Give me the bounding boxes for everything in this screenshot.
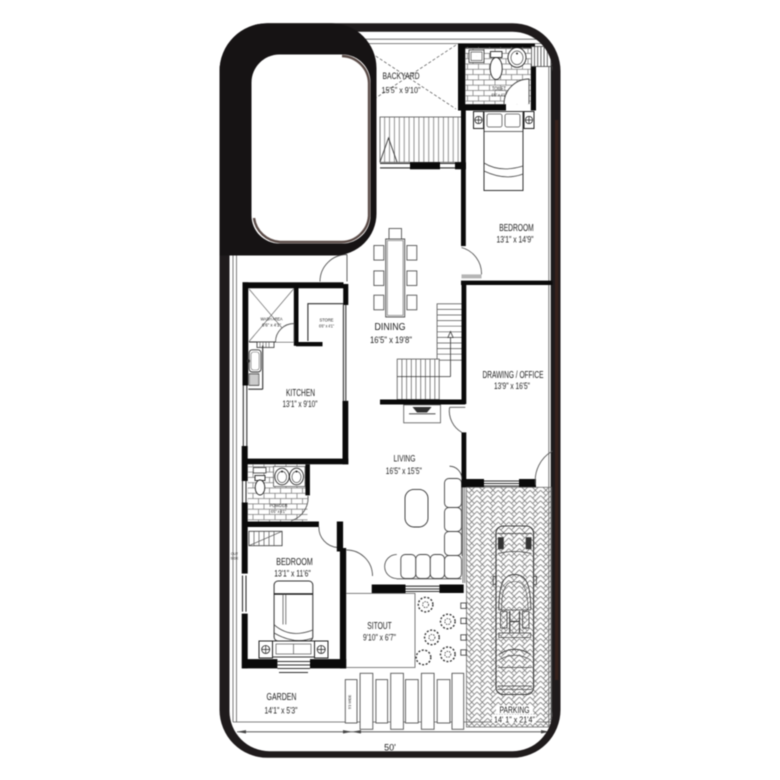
svg-text:BEDROOM: BEDROOM [499, 223, 534, 234]
svg-text:STORE: STORE [320, 318, 334, 323]
svg-text:6'6" x 4'1": 6'6" x 4'1" [262, 323, 281, 328]
svg-text:DINING: DINING [375, 322, 406, 333]
svg-text:LIVING: LIVING [394, 453, 416, 463]
svg-text:5'3 WIDE: 5'3 WIDE [348, 694, 352, 709]
svg-text:6'6" x 4'1": 6'6" x 4'1" [271, 509, 286, 514]
svg-text:GARDEN: GARDEN [267, 692, 297, 703]
svg-text:BEDROOM: BEDROOM [276, 557, 313, 568]
svg-text:POWDER: POWDER [270, 503, 289, 508]
svg-text:14'1" x 5'3": 14'1" x 5'3" [265, 705, 298, 715]
svg-text:6'6" x 4'1": 6'6" x 4'1" [319, 323, 334, 328]
svg-text:13'1" x 9'10": 13'1" x 9'10" [283, 399, 318, 409]
svg-text:16'5" x 15'5": 16'5" x 15'5" [386, 466, 422, 476]
svg-text:BACKYARD: BACKYARD [383, 71, 420, 82]
svg-text:6'6" x 4'1": 6'6" x 4'1" [492, 93, 507, 98]
svg-text:WASH AREA: WASH AREA [261, 317, 284, 322]
svg-text:15'5" x 9'10": 15'5" x 9'10" [382, 85, 421, 95]
svg-text:9'10" x 6'7": 9'10" x 6'7" [363, 632, 396, 642]
svg-text:SITOUT: SITOUT [367, 621, 392, 632]
svg-text:50': 50' [384, 743, 396, 753]
svg-text:OUT: OUT [231, 552, 238, 556]
svg-text:16'5" x 19'8": 16'5" x 19'8" [370, 335, 412, 345]
svg-text:13'1" x 14'9": 13'1" x 14'9" [497, 235, 534, 245]
svg-text:DRAWING / OFFICE: DRAWING / OFFICE [483, 369, 544, 381]
svg-text:KITCHEN: KITCHEN [286, 388, 315, 399]
svg-text:14' 1" x 21'4": 14' 1" x 21'4" [494, 715, 535, 725]
svg-text:SIDE: SIDE [231, 557, 240, 561]
svg-text:13'1" x 11'6": 13'1" x 11'6" [274, 568, 311, 578]
svg-text:13'9" x 16'5": 13'9" x 16'5" [494, 381, 530, 391]
